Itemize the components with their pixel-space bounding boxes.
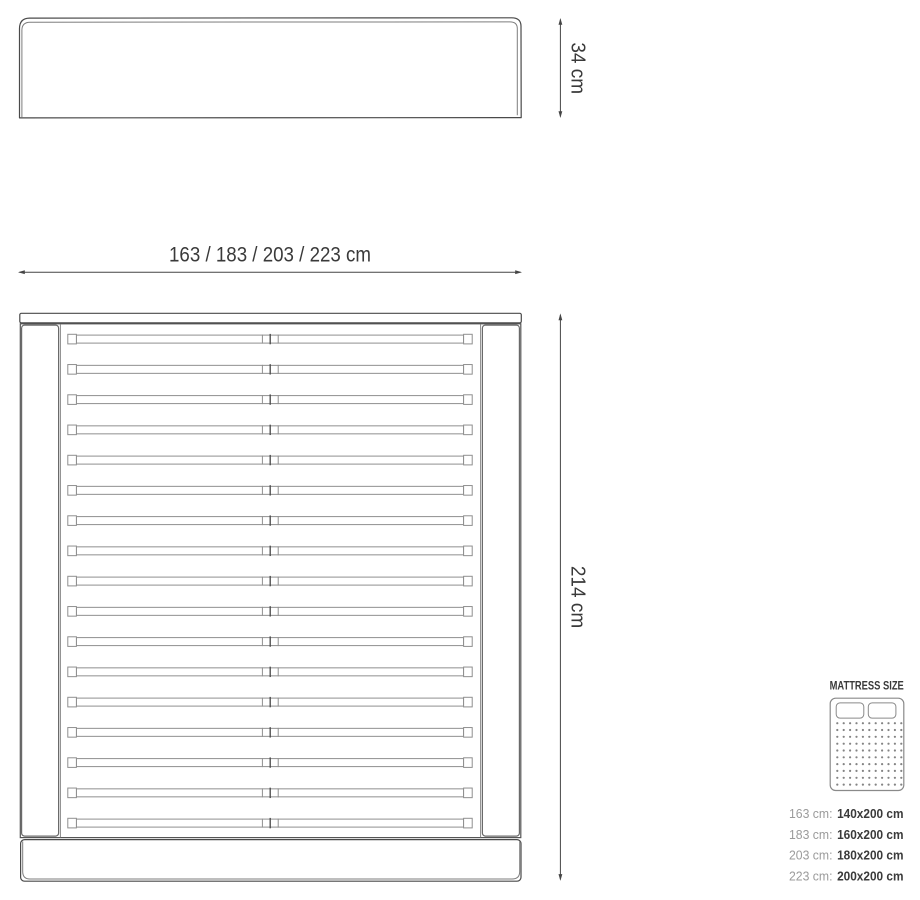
- svg-text:MATTRESS SIZE: MATTRESS SIZE: [830, 679, 904, 692]
- svg-text:140x200 cm: 140x200 cm: [837, 806, 903, 821]
- svg-text:180x200 cm: 180x200 cm: [837, 848, 903, 863]
- svg-text:34 cm: 34 cm: [566, 42, 589, 94]
- svg-text:223 cm:: 223 cm:: [789, 868, 832, 884]
- svg-text:163 / 183 / 203 / 223 cm: 163 / 183 / 203 / 223 cm: [169, 243, 371, 266]
- svg-text:160x200 cm: 160x200 cm: [837, 827, 903, 842]
- svg-text:203 cm:: 203 cm:: [789, 847, 832, 863]
- svg-text:163 cm:: 163 cm:: [789, 805, 832, 821]
- svg-text:183 cm:: 183 cm:: [789, 826, 832, 842]
- svg-text:214 cm: 214 cm: [566, 566, 589, 628]
- svg-text:200x200 cm: 200x200 cm: [837, 869, 903, 884]
